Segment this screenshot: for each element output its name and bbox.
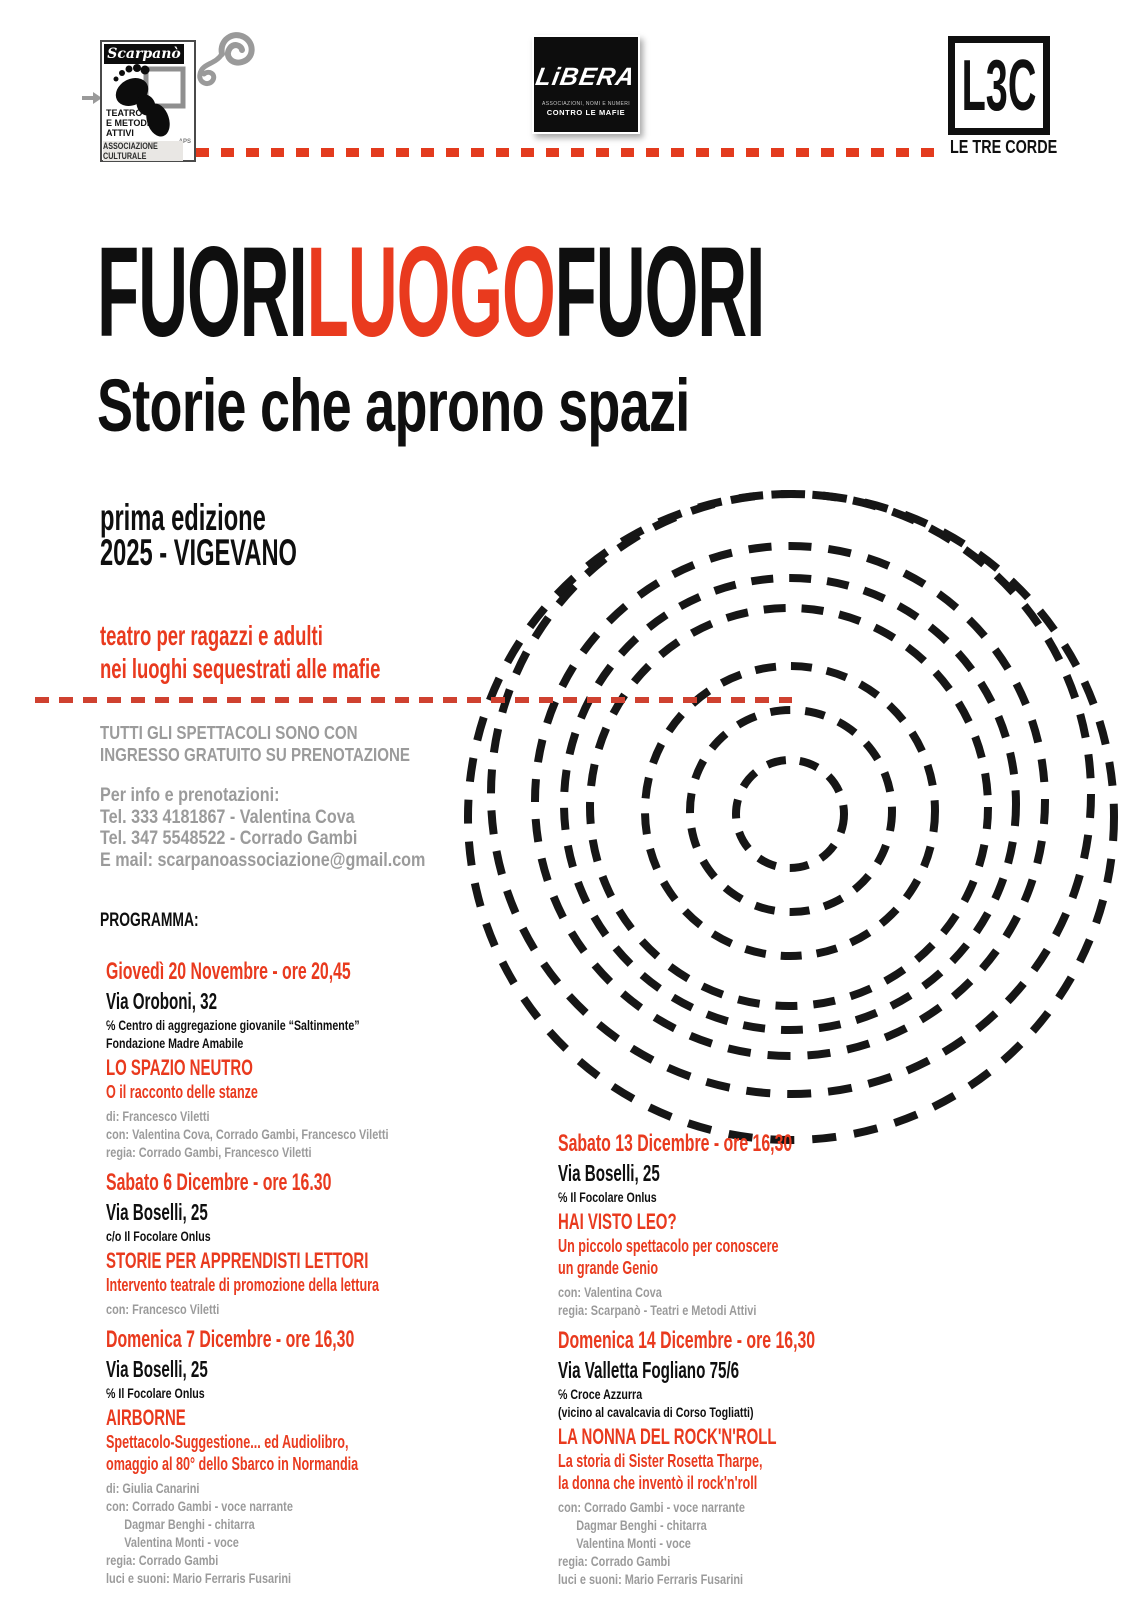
event-credits: di: Francesco Viletticon: Valentina Cova… bbox=[106, 1107, 566, 1161]
credits-line: Dagmar Benghi - chitarra bbox=[558, 1516, 917, 1534]
event-date: Sabato 13 Dicembre - ore 16,30 bbox=[558, 1130, 862, 1158]
event-listing: Domenica 14 Dicembre - ore 16,30 Via Val… bbox=[558, 1327, 1018, 1588]
credits-line: Valentina Monti - voce bbox=[106, 1533, 465, 1551]
event-location: c/o Il Focolare Onlus bbox=[106, 1227, 566, 1245]
subtitle-line: La storia di Sister Rosetta Tharpe, bbox=[558, 1450, 880, 1472]
event-title: LO SPAZIO NEUTRO bbox=[106, 1055, 419, 1081]
l3c-logo: L3C bbox=[948, 36, 1050, 135]
l3c-abbr: L3C bbox=[962, 50, 1037, 122]
event-credits: di: Giulia Canarinicon: Corrado Gambi - … bbox=[106, 1479, 566, 1587]
subtitle-line: Un piccolo spettacolo per conoscere bbox=[558, 1235, 880, 1257]
location-line: ℅ Il Focolare Onlus bbox=[106, 1384, 456, 1402]
tagline-block: teatro per ragazzi e adulti nei luoghi s… bbox=[100, 619, 525, 685]
event-credits: con: Valentina Covaregia: Scarpanò - Tea… bbox=[558, 1283, 1018, 1319]
tagline-line1: teatro per ragazzi e adulti bbox=[100, 619, 380, 652]
edition-line1: prima edizione bbox=[100, 500, 297, 535]
event-title: AIRBORNE bbox=[106, 1405, 419, 1431]
subtitle-line: la donna che inventò il rock'n'roll bbox=[558, 1472, 880, 1494]
event-subtitle: Spettacolo-Suggestione... ed Audiolibro,… bbox=[106, 1431, 566, 1475]
event-title: LA NONNA DEL ROCK'N'ROLL bbox=[558, 1424, 871, 1450]
credits-line: con: Francesco Viletti bbox=[106, 1300, 465, 1318]
contact-email: E mail: scarpanoassociazione@gmail.com bbox=[100, 850, 425, 872]
credits-line: regia: Corrado Gambi, Francesco Viletti bbox=[106, 1143, 465, 1161]
free-entry-note: TUTTI GLI SPETTACOLI SONO CON INGRESSO G… bbox=[100, 722, 469, 766]
program-column-left: Giovedì 20 Novembre - ore 20,45 Via Orob… bbox=[106, 958, 566, 1595]
event-title: HAI VISTO LEO? bbox=[558, 1209, 871, 1235]
event-date: Domenica 14 Dicembre - ore 16,30 bbox=[558, 1327, 862, 1355]
tagline-line2: nei luoghi sequestrati alle mafie bbox=[100, 652, 380, 685]
title-fuori-1: FUORI bbox=[97, 221, 307, 364]
subtitle-line: un grande Genio bbox=[558, 1257, 880, 1279]
contact-phone-1: Tel. 333 4181867 - Valentina Cova bbox=[100, 807, 425, 829]
credits-line: luci e suoni: Mario Ferraris Fusarini bbox=[106, 1569, 465, 1587]
credits-line: con: Valentina Cova, Corrado Gambi, Fran… bbox=[106, 1125, 465, 1143]
location-line: Fondazione Madre Amabile bbox=[106, 1034, 456, 1052]
event-credits: con: Corrado Gambi - voce narrante Dagma… bbox=[558, 1498, 1018, 1588]
location-line: ℅ Croce Azzurra bbox=[558, 1385, 908, 1403]
credits-line: con: Corrado Gambi - voce narrante bbox=[558, 1498, 917, 1516]
scarpano-logo: Scarpanò TEATRO E METODI ATTIVI APS ASSO… bbox=[78, 26, 318, 166]
swirl-icon bbox=[182, 22, 257, 112]
credits-line: con: Corrado Gambi - voce narrante bbox=[106, 1497, 465, 1515]
event-subtitle: Un piccolo spettacolo per conoscereun gr… bbox=[558, 1235, 1018, 1279]
event-date: Giovedì 20 Novembre - ore 20,45 bbox=[106, 958, 410, 986]
arrow-icon bbox=[82, 92, 102, 104]
dashed-divider-top bbox=[196, 148, 935, 157]
event-listing: Giovedì 20 Novembre - ore 20,45 Via Orob… bbox=[106, 958, 566, 1161]
program-heading: PROGRAMMA: bbox=[100, 910, 235, 932]
libera-subtitle2: CONTRO LE MAFIE bbox=[547, 108, 626, 117]
event-listing: Sabato 13 Dicembre - ore 16,30 Via Bosel… bbox=[558, 1130, 1018, 1319]
credits-line: luci e suoni: Mario Ferraris Fusarini bbox=[558, 1570, 917, 1588]
dashed-divider-middle bbox=[35, 697, 792, 703]
libera-logo: LiBERA ASSOCIAZIONI, NOMI E NUMERI CONTR… bbox=[532, 35, 640, 134]
subtitle-line: O il racconto delle stanze bbox=[106, 1081, 428, 1103]
credits-line: regia: Corrado Gambi bbox=[558, 1552, 917, 1570]
event-venue: Via Boselli, 25 bbox=[558, 1158, 862, 1188]
libera-logo-inner: LiBERA ASSOCIAZIONI, NOMI E NUMERI CONTR… bbox=[534, 37, 638, 132]
event-location: ℅ Centro di aggregazione giovanile “Salt… bbox=[106, 1016, 566, 1052]
event-subtitle: O il racconto delle stanze bbox=[106, 1081, 566, 1103]
credits-line: regia: Corrado Gambi bbox=[106, 1551, 465, 1569]
event-listing: Sabato 6 Dicembre - ore 16.30 Via Bosell… bbox=[106, 1169, 566, 1318]
event-poster: Scarpanò TEATRO E METODI ATTIVI APS ASSO… bbox=[0, 0, 1131, 1600]
edition-line2: 2025 - VIGEVANO bbox=[100, 535, 297, 570]
event-venue: Via Valletta Fogliano 75/6 bbox=[558, 1355, 862, 1385]
subtitle-line: Spettacolo-Suggestione... ed Audiolibro, bbox=[106, 1431, 428, 1453]
event-credits: con: Francesco Viletti bbox=[106, 1300, 566, 1318]
program-column-right: Sabato 13 Dicembre - ore 16,30 Via Bosel… bbox=[558, 1130, 1018, 1596]
contact-intro: Per info e prenotazioni: bbox=[100, 785, 425, 807]
event-venue: Via Boselli, 25 bbox=[106, 1197, 410, 1227]
event-subtitle: La storia di Sister Rosetta Tharpe,la do… bbox=[558, 1450, 1018, 1494]
l3c-name: LE TRE CORDE bbox=[950, 137, 1084, 158]
event-subtitle: Intervento teatrale di promozione della … bbox=[106, 1274, 566, 1296]
libera-name: LiBERA bbox=[534, 63, 638, 92]
credits-line: regia: Scarpanò - Teatri e Metodi Attivi bbox=[558, 1301, 917, 1319]
subtitle-line: omaggio al 80° dello Sbarco in Normandia bbox=[106, 1453, 428, 1475]
title-fuori-2: FUORI bbox=[555, 221, 765, 364]
free-entry-line1: TUTTI GLI SPETTACOLI SONO CON bbox=[100, 722, 410, 744]
event-location: ℅ Il Focolare Onlus bbox=[558, 1188, 1018, 1206]
event-title: STORIE PER APPRENDISTI LETTORI bbox=[106, 1248, 419, 1274]
event-location: ℅ Croce Azzurra(vicino al cavalcavia di … bbox=[558, 1385, 1018, 1421]
libera-subtitle: ASSOCIAZIONI, NOMI E NUMERI bbox=[542, 101, 630, 107]
location-line: (vicino al cavalcavia di Corso Togliatti… bbox=[558, 1403, 908, 1421]
location-line: ℅ Il Focolare Onlus bbox=[558, 1188, 908, 1206]
edition-block: prima edizione 2025 - VIGEVANO bbox=[100, 500, 408, 570]
event-venue: Via Oroboni, 32 bbox=[106, 986, 410, 1016]
event-venue: Via Boselli, 25 bbox=[106, 1354, 410, 1384]
title-luogo: LUOGO bbox=[307, 221, 555, 364]
scarpano-tagline: TEATRO E METODI ATTIVI bbox=[106, 108, 149, 138]
event-date: Sabato 6 Dicembre - ore 16.30 bbox=[106, 1169, 410, 1197]
credits-line: Valentina Monti - voce bbox=[558, 1534, 917, 1552]
credits-line: di: Francesco Viletti bbox=[106, 1107, 465, 1125]
credits-line: di: Giulia Canarini bbox=[106, 1479, 465, 1497]
location-line: c/o Il Focolare Onlus bbox=[106, 1227, 456, 1245]
event-date: Domenica 7 Dicembre - ore 16,30 bbox=[106, 1326, 410, 1354]
poster-title: FUORILUOGOFUORI bbox=[97, 229, 764, 357]
contact-phone-2: Tel. 347 5548522 - Corrado Gambi bbox=[100, 828, 425, 850]
credits-line: Dagmar Benghi - chitarra bbox=[106, 1515, 465, 1533]
scarpano-name: Scarpanò bbox=[104, 44, 184, 64]
contact-block: Per info e prenotazioni: Tel. 333 418186… bbox=[100, 785, 483, 871]
event-listing: Domenica 7 Dicembre - ore 16,30 Via Bose… bbox=[106, 1326, 566, 1587]
scarpano-association: ASSOCIAZIONE CULTURALE bbox=[103, 141, 183, 161]
poster-subtitle: Storie che aprono spazi bbox=[97, 369, 690, 443]
event-location: ℅ Il Focolare Onlus bbox=[106, 1384, 566, 1402]
location-line: ℅ Centro di aggregazione giovanile “Salt… bbox=[106, 1016, 456, 1034]
free-entry-line2: INGRESSO GRATUITO SU PRENOTAZIONE bbox=[100, 744, 410, 766]
subtitle-line: Intervento teatrale di promozione della … bbox=[106, 1274, 428, 1296]
credits-line: con: Valentina Cova bbox=[558, 1283, 917, 1301]
